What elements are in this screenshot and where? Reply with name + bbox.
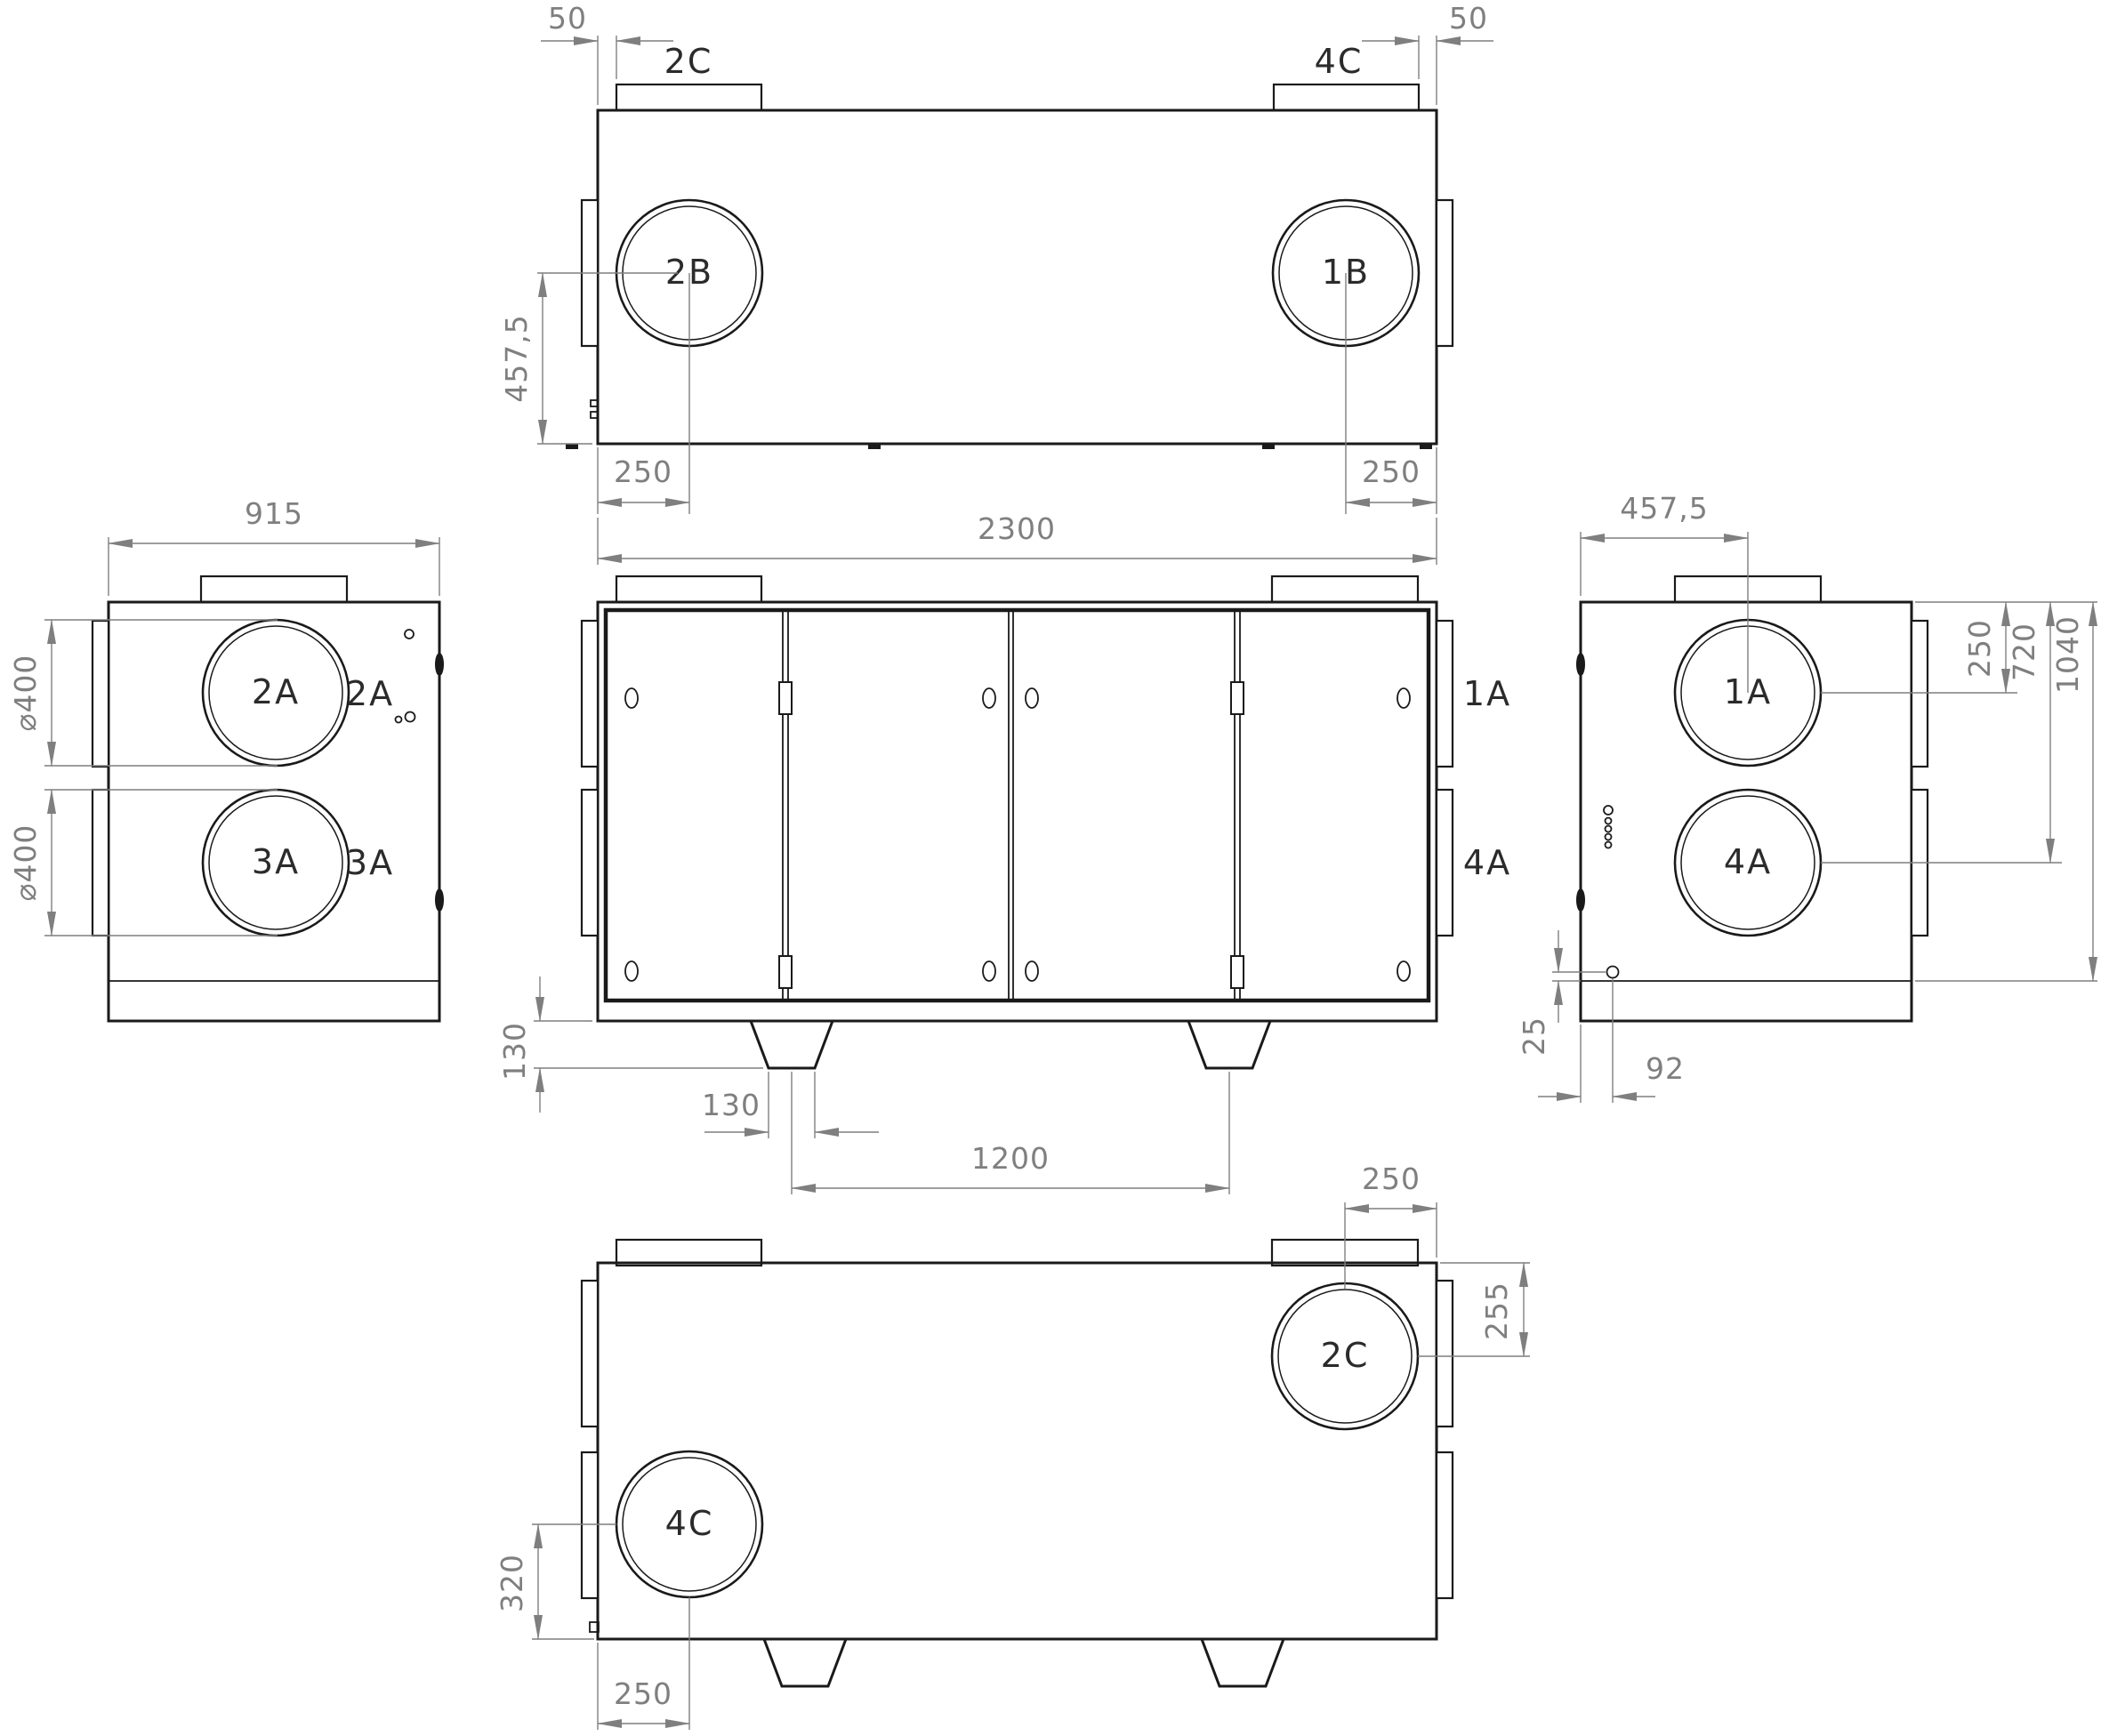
dim-text: 50 bbox=[1449, 1, 1488, 36]
left-view-rear-flange-top bbox=[93, 621, 109, 767]
small-hole bbox=[405, 630, 414, 639]
hinge bbox=[779, 956, 792, 988]
small-hole bbox=[406, 712, 415, 722]
top-view: 2B 1B 2C 4C 50 50 457,5 bbox=[499, 1, 1493, 565]
side-label-2a: 2A bbox=[346, 674, 394, 713]
unit-dimension-drawing: 2B 1B 2C 4C 50 50 457,5 bbox=[0, 0, 2101, 1736]
dim-text: 50 bbox=[548, 1, 587, 36]
cable-gland bbox=[1607, 967, 1619, 978]
foot-right bbox=[1202, 1639, 1284, 1686]
dim-720: 720 bbox=[2007, 602, 2050, 863]
side-label-3a: 3A bbox=[346, 843, 394, 882]
front-view-top-flange-right bbox=[1272, 576, 1418, 602]
door-handle bbox=[1397, 688, 1410, 708]
port-label-4c: 4C bbox=[665, 1504, 714, 1543]
clip-mark bbox=[868, 444, 881, 449]
top-view-duct-flange-2c bbox=[616, 84, 761, 110]
right-view-rear-flange-top bbox=[1912, 621, 1928, 767]
dim-250-top: 250 bbox=[1345, 1161, 1437, 1289]
dim-130-foot-width: 130 bbox=[702, 1072, 879, 1194]
flange-4a bbox=[1437, 790, 1453, 936]
hinge-bump bbox=[1576, 888, 1585, 912]
flange-3a bbox=[582, 790, 598, 936]
small-hole bbox=[1606, 818, 1612, 824]
top-view-right-flange bbox=[1437, 200, 1453, 346]
front-view-body bbox=[598, 602, 1437, 1021]
dim-text: 250 bbox=[1362, 454, 1421, 489]
dim-text: 255 bbox=[1479, 1282, 1514, 1340]
small-hole bbox=[1606, 834, 1612, 840]
bottom-view-right-flange-bottom bbox=[1437, 1452, 1453, 1598]
dim-text: 2300 bbox=[978, 511, 1056, 546]
dim-text: 92 bbox=[1646, 1051, 1685, 1086]
foot-left bbox=[764, 1639, 846, 1686]
small-hole bbox=[1604, 806, 1613, 815]
dim-250-right-view: 250 bbox=[1962, 602, 2006, 693]
flange-2a bbox=[582, 621, 598, 767]
dim-text: 457,5 bbox=[499, 314, 534, 402]
flange-label-4c: 4C bbox=[1315, 42, 1364, 81]
hinge bbox=[779, 682, 792, 714]
dim-text: 1040 bbox=[2050, 615, 2085, 694]
dim-250-bottom: 250 bbox=[598, 1597, 689, 1730]
dim-text: ⌀400 bbox=[8, 655, 43, 732]
hinge bbox=[1231, 682, 1244, 714]
dim-text: 720 bbox=[2007, 623, 2041, 681]
dim-text: 250 bbox=[1362, 1161, 1421, 1196]
bottom-view-right-flange-top bbox=[1437, 1281, 1453, 1427]
hinge bbox=[1231, 956, 1244, 988]
small-hole bbox=[396, 717, 402, 723]
hinge-bump bbox=[435, 888, 444, 912]
dim-text: 25 bbox=[1517, 1017, 1551, 1056]
dim-text: 250 bbox=[1962, 619, 1997, 678]
drawing-canvas: 2B 1B 2C 4C 50 50 457,5 bbox=[0, 0, 2101, 1736]
port-label-4a: 4A bbox=[1724, 842, 1772, 881]
clip-mark bbox=[1262, 444, 1275, 449]
door-handle bbox=[1397, 961, 1410, 981]
foot-right bbox=[1188, 1021, 1270, 1068]
dim-92: 92 bbox=[1538, 978, 1685, 1103]
door-handle bbox=[625, 688, 638, 708]
dim-text: ⌀400 bbox=[8, 824, 43, 902]
front-view: 2A 3A 1A 4A 130 130 1200 bbox=[346, 576, 1511, 1194]
door-handle bbox=[1026, 688, 1038, 708]
door-frame bbox=[606, 610, 1429, 1001]
hinge-bump bbox=[435, 653, 444, 676]
left-view-rear-flange-bottom bbox=[93, 790, 109, 936]
front-view-top-flange-left bbox=[616, 576, 761, 602]
clip-mark bbox=[1420, 444, 1432, 449]
left-view-top-flange bbox=[201, 576, 347, 602]
left-side-view: 2A 3A 915 ⌀400 ⌀400 bbox=[8, 496, 444, 1021]
dim-25: 25 bbox=[1517, 930, 1606, 1056]
dim-250-left: 250 bbox=[598, 447, 689, 514]
clip-mark bbox=[566, 444, 578, 449]
dim-250-right: 250 bbox=[1346, 447, 1437, 514]
small-hole bbox=[1606, 826, 1612, 832]
dim-1200: 1200 bbox=[792, 1072, 1229, 1194]
port-label-3a: 3A bbox=[252, 842, 300, 881]
dim-text: 250 bbox=[614, 1676, 672, 1711]
dim-text: 320 bbox=[495, 1554, 529, 1612]
foot-left bbox=[751, 1021, 833, 1068]
dim-text: 457,5 bbox=[1620, 491, 1708, 526]
port-label-2c: 2C bbox=[1321, 1336, 1370, 1375]
door-handle bbox=[1026, 961, 1038, 981]
top-view-duct-flange-4c bbox=[1274, 84, 1419, 110]
bottom-view-left-flange-bottom bbox=[582, 1452, 598, 1598]
dim-text: 1200 bbox=[971, 1141, 1050, 1176]
side-label-1a: 1A bbox=[1463, 674, 1511, 713]
flange-1a bbox=[1437, 621, 1453, 767]
dim-text: 250 bbox=[614, 454, 672, 489]
port-label-2a: 2A bbox=[252, 672, 300, 711]
dim-1040: 1040 bbox=[2050, 602, 2093, 981]
bottom-view: 2C 4C 250 255 320 250 bbox=[495, 1161, 1530, 1730]
door-handle bbox=[983, 961, 995, 981]
dim-text: 915 bbox=[245, 496, 303, 531]
bottom-view-left-flange-top bbox=[582, 1281, 598, 1427]
side-label-4a: 4A bbox=[1463, 843, 1511, 882]
dim-text: 130 bbox=[497, 1022, 532, 1081]
door-handle bbox=[983, 688, 995, 708]
dim-2300: 2300 bbox=[598, 511, 1437, 565]
dim-text: 130 bbox=[702, 1088, 761, 1122]
door-handle bbox=[625, 961, 638, 981]
dim-255: 255 bbox=[1418, 1263, 1530, 1356]
hinge-bump bbox=[1576, 653, 1585, 676]
right-side-view: 1A 4A 457,5 250 720 bbox=[1517, 491, 2097, 1103]
small-hole bbox=[1606, 842, 1612, 848]
flange-label-2c: 2C bbox=[664, 42, 713, 81]
